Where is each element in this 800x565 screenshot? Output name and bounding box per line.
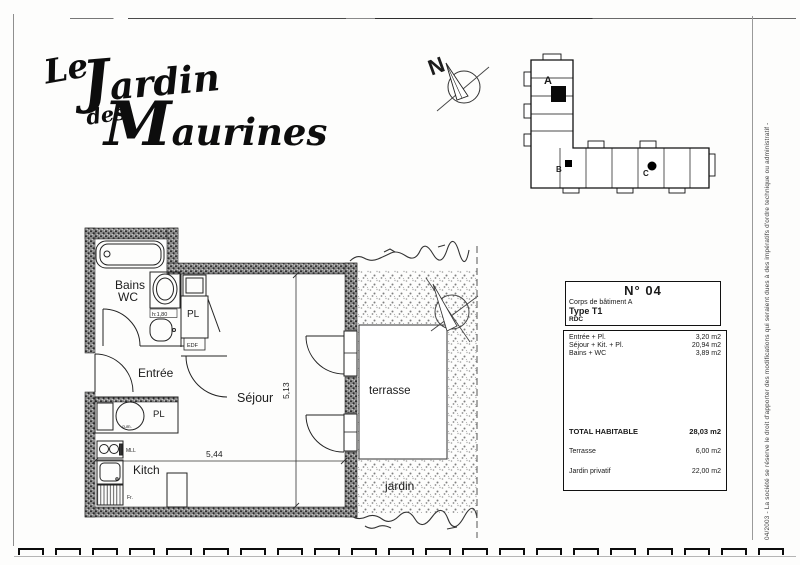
wc-flush-dot [173, 329, 176, 332]
site-balcony [563, 188, 579, 193]
area-label: Séjour + Kit. + Pl. [569, 342, 623, 350]
north-compass: N [413, 42, 508, 122]
wall-bath-top [85, 228, 178, 239]
page-edge-right-line [752, 16, 753, 540]
entry-closet [95, 397, 178, 433]
room-label-terrasse: terrasse [369, 385, 411, 397]
scanned-floorplan-page: Le Jardin des Maurines N A B C [0, 0, 800, 565]
kitchen-sink-drain [116, 478, 118, 480]
fixture-label-mll: MLL [126, 448, 136, 454]
wc-toilet [150, 319, 172, 341]
site-balcony [524, 104, 531, 118]
unit-info-header-box: N° 04 Corps de bâtiment A Type T1 RDC [565, 281, 721, 326]
film-bracket [55, 548, 81, 555]
bathroom-fixtures [96, 241, 220, 350]
wall-sejour-top [167, 263, 357, 274]
door-swings [95, 309, 227, 397]
room-label-jardin: jardin [384, 479, 414, 493]
wall-bottom [85, 507, 357, 517]
page-edge-left-line [13, 14, 14, 546]
jardin-value: 22,00 m2 [692, 468, 721, 476]
unit-location-marker [551, 86, 566, 102]
dim-depth-label: 5,13 [281, 382, 291, 399]
legal-side-note: 04/2003 - La société se réserve le droit… [764, 18, 774, 540]
film-bracket [388, 548, 414, 555]
bathtub [96, 241, 164, 268]
film-bracket [573, 548, 599, 555]
fixture-label-pl-entry: PL [153, 409, 165, 420]
fixture-label-cum: cum. [122, 424, 132, 429]
jardin-privatif-row: Jardin privatif 22,00 m2 [569, 468, 721, 476]
site-balcony [669, 188, 685, 193]
closet-entry-shelf [97, 403, 113, 430]
terrasse-row: Terrasse 6,00 m2 [569, 448, 721, 456]
area-value: 3,20 m2 [696, 334, 721, 342]
total-habitable-row: TOTAL HABITABLE 28,03 m2 [569, 428, 721, 436]
window-lower-arc [306, 415, 344, 452]
film-bracket [129, 548, 155, 555]
stair-marker [565, 160, 572, 167]
closet-entry-outline [95, 397, 178, 433]
compass-needle-mid-line [446, 63, 462, 98]
shelf-box-inner [186, 278, 203, 293]
film-bracket [277, 548, 303, 555]
film-bracket [536, 548, 562, 555]
site-balcony [524, 72, 531, 86]
film-bracket [18, 548, 44, 555]
stair-marker [648, 162, 657, 171]
room-label-sejour: Séjour [237, 391, 273, 405]
building-label-b: B [556, 165, 562, 174]
sejour-door-arc [186, 356, 227, 397]
total-value: 28,03 m2 [689, 428, 721, 436]
area-label: Bains + WC [569, 350, 606, 358]
wall-left-lower [85, 392, 95, 517]
area-value: 20,94 m2 [692, 342, 721, 350]
fixture-label-height: h:1,80 [152, 312, 167, 318]
room-label-kitch: Kitch [133, 463, 160, 477]
fridge-space [97, 485, 123, 505]
page-edge-top-line [70, 18, 796, 19]
area-row: Bains + WC 3,89 m2 [569, 350, 721, 358]
film-bracket [758, 548, 784, 555]
film-bracket [684, 548, 710, 555]
film-bracket [425, 548, 451, 555]
hob-panel [120, 444, 123, 455]
jardin-label: Jardin privatif [569, 468, 611, 476]
room-label-entree: Entrée [138, 366, 174, 380]
kitchen-sink [97, 460, 123, 484]
film-bracket [92, 548, 118, 555]
terrasse-label: Terrasse [569, 448, 596, 456]
building-name: Corps de bâtiment A [569, 299, 720, 306]
bathtub-inner [100, 244, 161, 265]
film-bracket [314, 548, 340, 555]
film-bracket [610, 548, 636, 555]
film-strip-baseline [14, 556, 796, 557]
unit-type: Type T1 [569, 306, 720, 316]
building-label-a: A [544, 75, 552, 87]
film-bracket [647, 548, 673, 555]
film-bracket [721, 548, 747, 555]
washbasin-inner [157, 278, 174, 300]
bathtub-drain [104, 251, 110, 257]
closet-door-leaf [208, 299, 220, 332]
film-bracket [499, 548, 525, 555]
fixture-label-edf: EDF [187, 343, 199, 349]
window-lower [344, 414, 357, 451]
apartment-floor-plan: 5,44 5,13 Bains WC Entrée Séjour Kitch t… [78, 220, 490, 542]
area-value: 3,89 m2 [696, 350, 721, 358]
logo-word-maurines: Maurines [104, 94, 327, 155]
room-label-wc: WC [118, 290, 138, 304]
exterior-walls [85, 228, 357, 517]
washbasin-cabinet [150, 272, 180, 308]
film-strip [18, 548, 798, 555]
north-label: N [425, 52, 448, 81]
unit-number: N° 04 [566, 283, 720, 298]
fixture-label-fr: Fr. [127, 495, 133, 501]
hob-burner [110, 445, 119, 454]
film-bracket [240, 548, 266, 555]
entry-door-arc [95, 354, 133, 392]
window-upper-arc [306, 336, 344, 374]
site-balcony [524, 134, 531, 146]
bath-door-arc [103, 309, 140, 346]
building-label-c: C [643, 169, 649, 178]
unit-areas-box: Entrée + Pl. 3,20 m2 Séjour + Kit. + Pl.… [563, 330, 727, 491]
film-bracket [166, 548, 192, 555]
total-label: TOTAL HABITABLE [569, 428, 638, 436]
fixture-label-pl-bath: PL [187, 309, 200, 320]
kitchen-counter [167, 473, 187, 507]
dim-width-label: 5,44 [206, 449, 223, 459]
hob-burner [100, 445, 109, 454]
wall-right-upper [345, 263, 357, 330]
area-row: Entrée + Pl. 3,20 m2 [569, 334, 721, 342]
film-bracket [462, 548, 488, 555]
wall-left-upper [85, 228, 95, 353]
site-balcony [709, 154, 715, 176]
area-label: Entrée + Pl. [569, 334, 606, 342]
wall-right-middle [345, 377, 357, 413]
dimension-depth-5-13: 5,13 [280, 272, 299, 509]
floor-level: RDC [569, 316, 720, 323]
site-key-plan: A B C [518, 48, 716, 198]
area-row: Séjour + Kit. + Pl. 20,94 m2 [569, 342, 721, 350]
wall-closet-top [95, 397, 178, 402]
site-balcony [617, 188, 633, 193]
film-bracket [203, 548, 229, 555]
window-upper [344, 331, 357, 376]
film-bracket [351, 548, 377, 555]
terrasse-value: 6,00 m2 [696, 448, 721, 456]
